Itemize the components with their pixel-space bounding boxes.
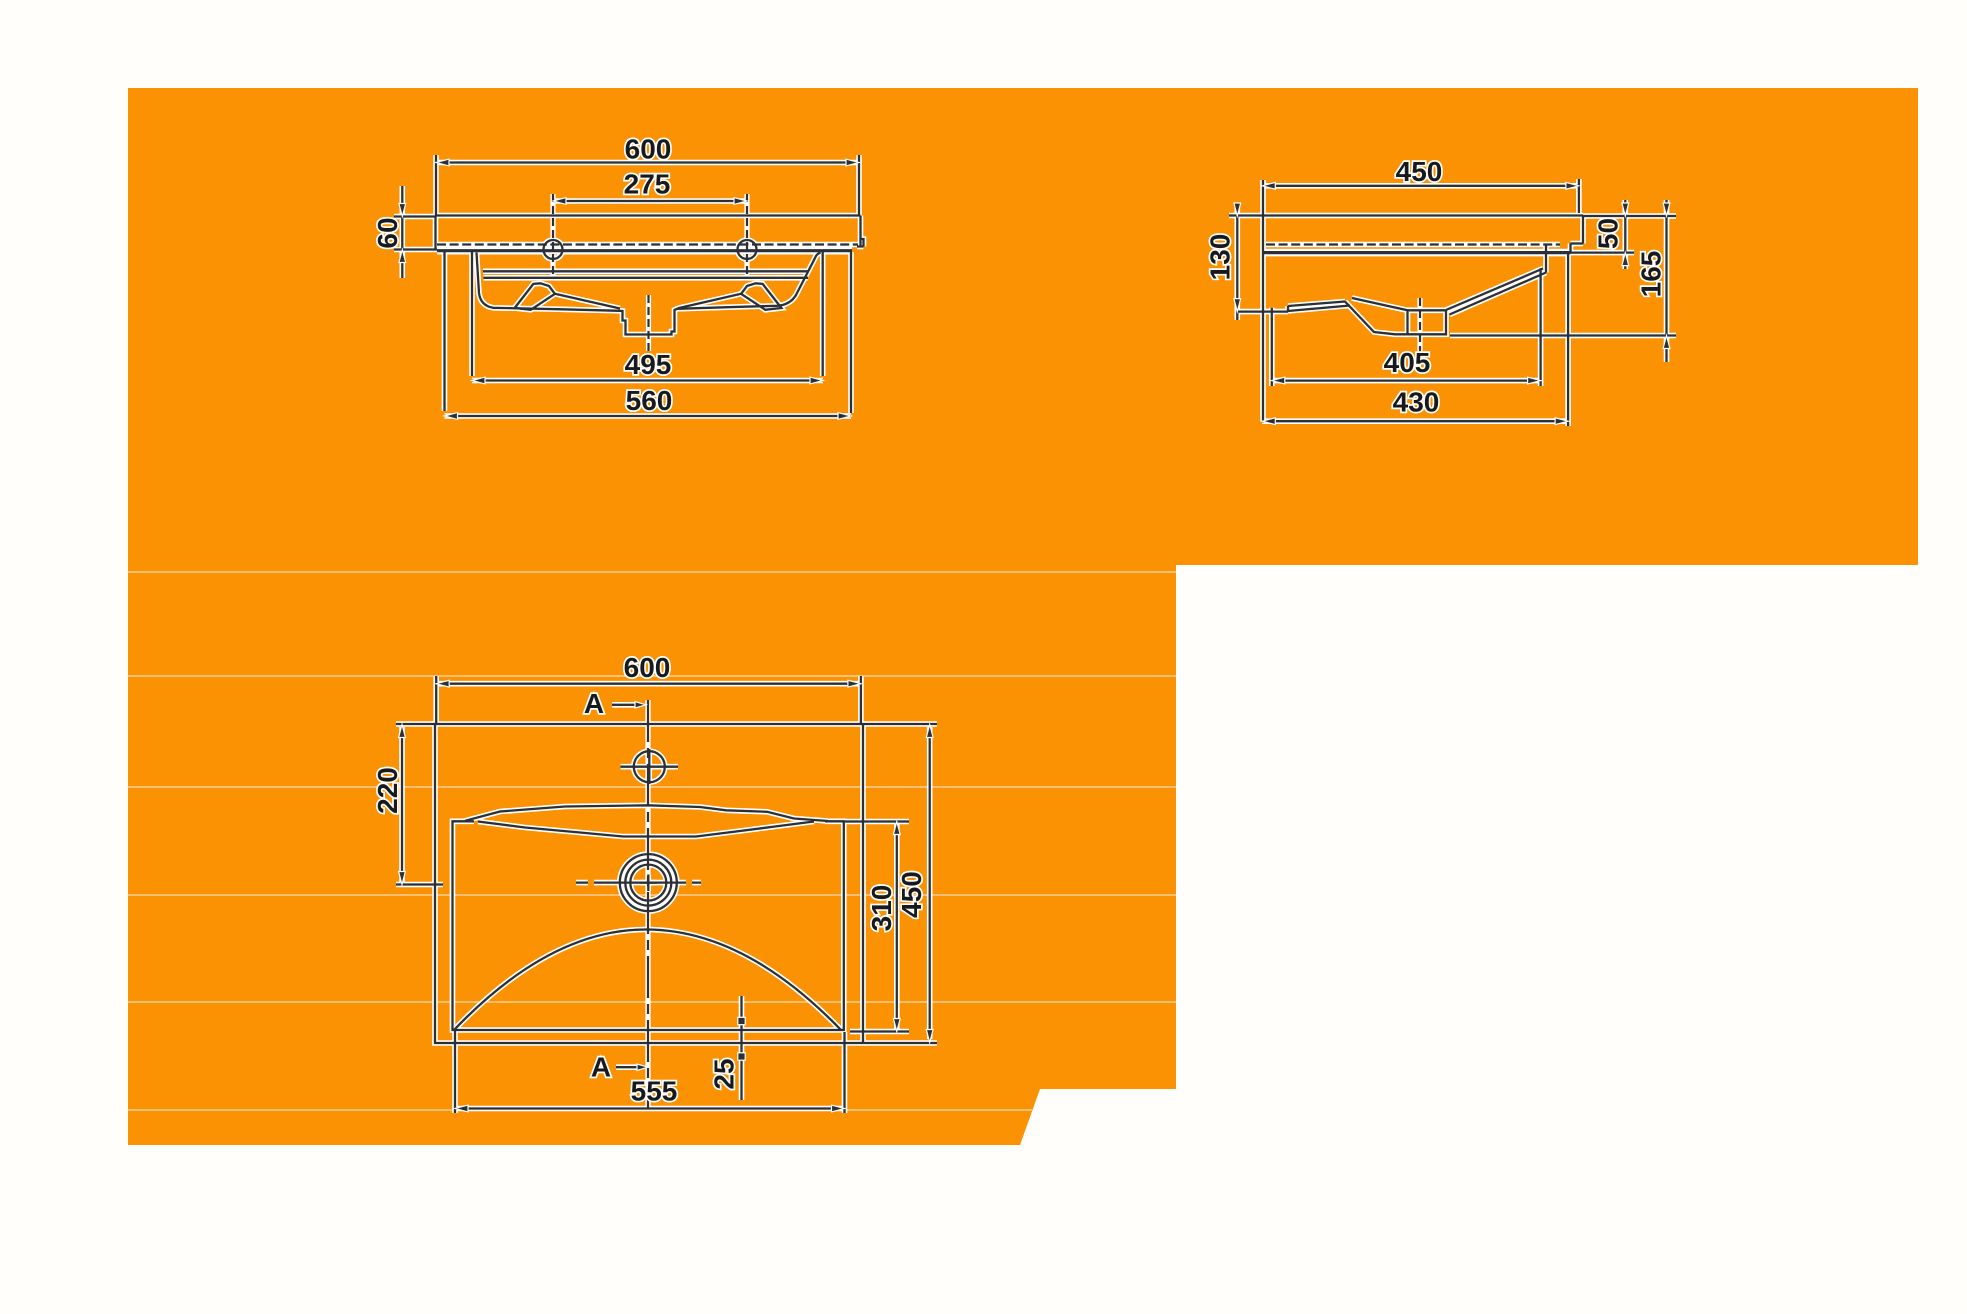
svg-text:310: 310 [866, 885, 897, 932]
svg-text:450: 450 [1396, 156, 1443, 187]
svg-text:A: A [584, 688, 604, 719]
svg-text:560: 560 [626, 385, 673, 416]
svg-text:450: 450 [896, 871, 927, 918]
svg-text:130: 130 [1205, 234, 1236, 281]
svg-text:405: 405 [1384, 347, 1431, 378]
svg-text:555: 555 [631, 1076, 678, 1107]
svg-text:220: 220 [372, 767, 403, 814]
svg-text:50: 50 [1593, 218, 1624, 249]
svg-text:60: 60 [372, 217, 403, 248]
svg-text:25: 25 [709, 1058, 740, 1089]
svg-text:495: 495 [625, 349, 672, 380]
svg-text:600: 600 [625, 134, 672, 165]
svg-text:165: 165 [1636, 251, 1667, 298]
svg-text:275: 275 [624, 169, 671, 200]
svg-text:A: A [591, 1052, 611, 1083]
svg-text:600: 600 [624, 652, 671, 683]
svg-text:430: 430 [1393, 387, 1440, 418]
